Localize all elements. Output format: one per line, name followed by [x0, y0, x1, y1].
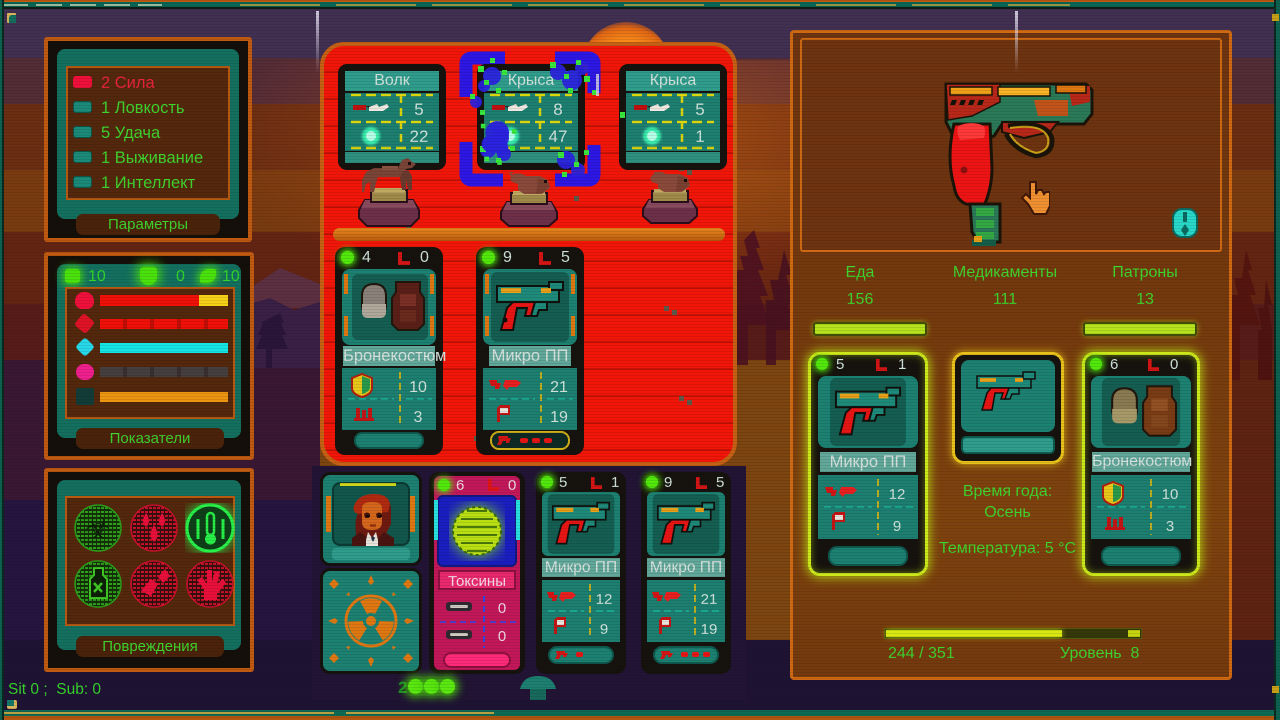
- svg-text:5: 5: [695, 100, 704, 119]
- svg-text:10: 10: [1162, 486, 1179, 503]
- svg-text:9: 9: [600, 621, 608, 638]
- svg-text:12: 12: [889, 486, 906, 503]
- svg-text:19: 19: [701, 621, 718, 638]
- svg-text:3: 3: [1166, 518, 1174, 535]
- svg-text:0: 0: [498, 600, 506, 617]
- svg-text:21: 21: [550, 379, 568, 396]
- svg-text:19: 19: [550, 409, 568, 426]
- svg-text:9: 9: [893, 518, 901, 535]
- svg-text:21: 21: [701, 591, 718, 608]
- svg-text:22: 22: [410, 127, 429, 146]
- svg-text:1: 1: [695, 127, 704, 146]
- svg-text:3: 3: [414, 409, 423, 426]
- svg-text:☣: ☣: [85, 512, 112, 545]
- svg-text:0: 0: [498, 628, 506, 645]
- svg-text:5: 5: [414, 100, 423, 119]
- svg-text:12: 12: [596, 591, 613, 608]
- svg-text:10: 10: [409, 379, 427, 396]
